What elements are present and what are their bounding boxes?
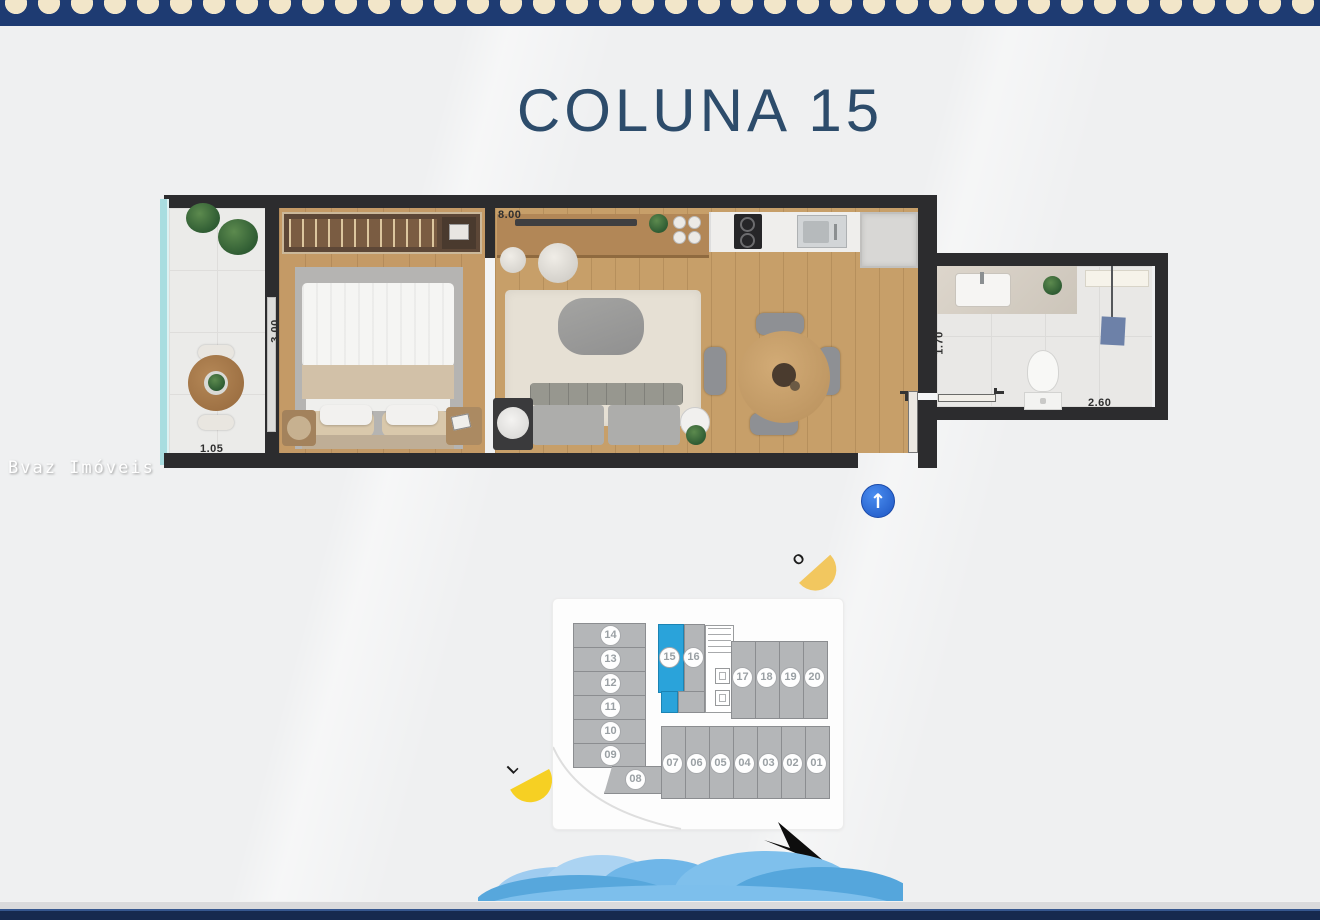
unit-number-12: 12 bbox=[600, 673, 621, 694]
unit-number-08: 08 bbox=[625, 769, 646, 790]
wall-bedroom-stub bbox=[485, 208, 495, 258]
entrance-door bbox=[908, 391, 918, 453]
unit-number-04: 04 bbox=[734, 753, 755, 774]
dim-label-bathroom-length: 2.60 bbox=[1088, 397, 1111, 409]
bathroom-vanity bbox=[937, 266, 1077, 314]
unit-box-16-lower bbox=[678, 691, 705, 713]
wardrobe-cabinet bbox=[442, 217, 476, 249]
unit-number-19: 19 bbox=[780, 667, 801, 688]
balcony-sliding-door bbox=[267, 297, 276, 432]
vanity-plant bbox=[1043, 276, 1062, 295]
counter-plate bbox=[673, 216, 686, 229]
bed bbox=[302, 283, 454, 449]
vanity-faucet bbox=[980, 272, 984, 284]
unit-number-20: 20 bbox=[804, 667, 825, 688]
side-table bbox=[678, 407, 712, 449]
kitchen-white-counter bbox=[709, 212, 860, 252]
side-table-plant bbox=[686, 425, 706, 445]
counter-shelf bbox=[515, 219, 637, 226]
photo-frame bbox=[451, 413, 472, 430]
building-core bbox=[705, 625, 734, 713]
nightstand-tray bbox=[287, 416, 311, 440]
bathroom-door-stop bbox=[994, 388, 1004, 394]
entrance-door-stop bbox=[900, 391, 908, 401]
bottom-gray-strip bbox=[0, 901, 1320, 909]
page-title: COLUNA 15 bbox=[517, 76, 883, 145]
unit-number-10: 10 bbox=[600, 721, 621, 742]
unit-number-09: 09 bbox=[600, 745, 621, 766]
balcony-plant bbox=[218, 219, 258, 255]
bathroom-door bbox=[938, 394, 996, 402]
cooktop bbox=[734, 214, 762, 249]
counter-plate bbox=[688, 216, 701, 229]
unit-number-13: 13 bbox=[600, 649, 621, 670]
wall-bath-left bbox=[918, 253, 937, 393]
dining-table bbox=[738, 331, 830, 423]
nightstand bbox=[446, 407, 482, 445]
unit-box-15-stem bbox=[661, 691, 678, 713]
bed-pillow bbox=[320, 405, 372, 425]
toilet bbox=[1024, 350, 1062, 412]
bottom-navy-bar bbox=[0, 909, 1320, 920]
wall-top bbox=[164, 195, 937, 208]
shower-fixture bbox=[1100, 316, 1125, 345]
wall-extension-top bbox=[918, 253, 1168, 266]
unit-number-15: 15 bbox=[659, 647, 680, 668]
sofa-seat bbox=[608, 405, 680, 445]
counter-plate bbox=[688, 231, 701, 244]
balcony-chair bbox=[198, 415, 234, 430]
unit-number-02: 02 bbox=[782, 753, 803, 774]
bed-throw bbox=[302, 365, 454, 399]
bed-blanket bbox=[302, 435, 454, 449]
dining-chair bbox=[704, 347, 726, 395]
stairs bbox=[708, 628, 731, 656]
stool bbox=[500, 247, 526, 273]
watermark: Bvaz Imóveis bbox=[8, 458, 155, 478]
compass-east-label: L bbox=[504, 759, 521, 776]
counter-plate bbox=[673, 231, 686, 244]
counter-plant bbox=[649, 214, 668, 233]
unit-number-06: 06 bbox=[686, 753, 707, 774]
nightstand bbox=[282, 410, 316, 446]
wardrobe bbox=[282, 212, 482, 254]
waves-decoration bbox=[478, 843, 903, 903]
vanity-sink bbox=[955, 273, 1011, 307]
table-decor bbox=[790, 381, 800, 391]
floor-plan: 8.00 3.00 1.05 1.70 2.60 bbox=[160, 195, 1168, 475]
unit-number-14: 14 bbox=[600, 625, 621, 646]
wall-extension-right bbox=[1155, 253, 1168, 420]
dim-label-balcony-depth: 1.05 bbox=[200, 443, 223, 455]
kitchen-wood-counter bbox=[497, 214, 709, 258]
faucet bbox=[834, 224, 837, 240]
balcony-plant bbox=[186, 203, 220, 233]
dim-label-living-length: 8.00 bbox=[498, 209, 521, 221]
unit-number-16: 16 bbox=[683, 647, 704, 668]
key-plan: 14 13 12 11 10 09 08 15 16 17 18 19 20 0… bbox=[552, 598, 844, 830]
elevator bbox=[715, 668, 730, 684]
ottoman bbox=[558, 298, 644, 355]
balcony-glass-wall bbox=[160, 199, 169, 465]
toilet-bowl bbox=[1027, 350, 1059, 392]
dim-label-bath-hall: 1.70 bbox=[934, 331, 946, 354]
armchair bbox=[497, 407, 529, 439]
dim-label-bedroom-width: 3.00 bbox=[270, 319, 282, 342]
bed-duvet bbox=[302, 283, 454, 367]
wardrobe-hangers bbox=[289, 219, 437, 247]
kitchen-sink bbox=[797, 215, 847, 248]
shower-hose bbox=[1111, 266, 1113, 320]
compass-west-label: O bbox=[789, 549, 808, 568]
refrigerator bbox=[860, 212, 918, 268]
balcony-table-plant bbox=[208, 374, 225, 391]
elevator-car bbox=[719, 694, 726, 702]
unit-number-01: 01 bbox=[806, 753, 827, 774]
wardrobe-photo bbox=[449, 224, 469, 240]
toilet-button bbox=[1040, 398, 1046, 404]
burner bbox=[740, 233, 755, 248]
armchair-table bbox=[493, 398, 533, 450]
shell-border-decoration bbox=[0, 0, 1320, 26]
stool bbox=[538, 243, 578, 283]
sofa-seat bbox=[532, 405, 604, 445]
sink-basin bbox=[803, 221, 829, 243]
unit-number-03: 03 bbox=[758, 753, 779, 774]
unit-number-11: 11 bbox=[600, 697, 621, 718]
sofa-back bbox=[530, 383, 683, 405]
elevator-car bbox=[719, 672, 726, 680]
unit-number-07: 07 bbox=[662, 753, 683, 774]
unit-number-05: 05 bbox=[710, 753, 731, 774]
unit-number-18: 18 bbox=[756, 667, 777, 688]
burner bbox=[740, 217, 755, 232]
entrance-arrow-icon: ↑ bbox=[861, 484, 895, 518]
bathroom-shelf bbox=[1085, 270, 1149, 287]
elevator bbox=[715, 690, 730, 706]
sofa bbox=[530, 383, 683, 451]
bed-pillow bbox=[386, 405, 438, 425]
unit-number-17: 17 bbox=[732, 667, 753, 688]
